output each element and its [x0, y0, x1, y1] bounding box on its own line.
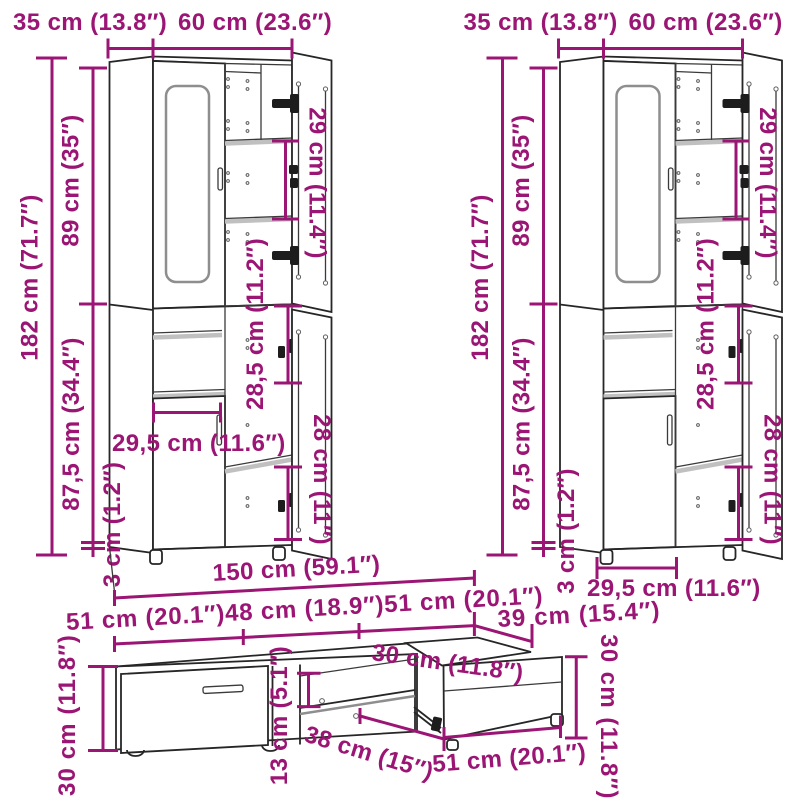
- svg-text:3 cm (1.2″): 3 cm (1.2″): [553, 468, 580, 594]
- svg-text:150 cm (59.1″): 150 cm (59.1″): [212, 551, 381, 587]
- svg-text:13 cm (5.1″): 13 cm (5.1″): [266, 646, 293, 785]
- svg-text:29,5 cm (11.6″): 29,5 cm (11.6″): [587, 575, 761, 602]
- svg-text:29,5 cm (11.6″): 29,5 cm (11.6″): [112, 430, 286, 457]
- svg-text:30 cm (11.8″): 30 cm (11.8″): [595, 634, 622, 800]
- svg-text:51 cm (20.1″)48 cm (18.9″)51 c: 51 cm (20.1″)48 cm (18.9″)51 cm (20.1″): [65, 582, 544, 636]
- svg-text:30 cm (11.8″): 30 cm (11.8″): [54, 634, 81, 796]
